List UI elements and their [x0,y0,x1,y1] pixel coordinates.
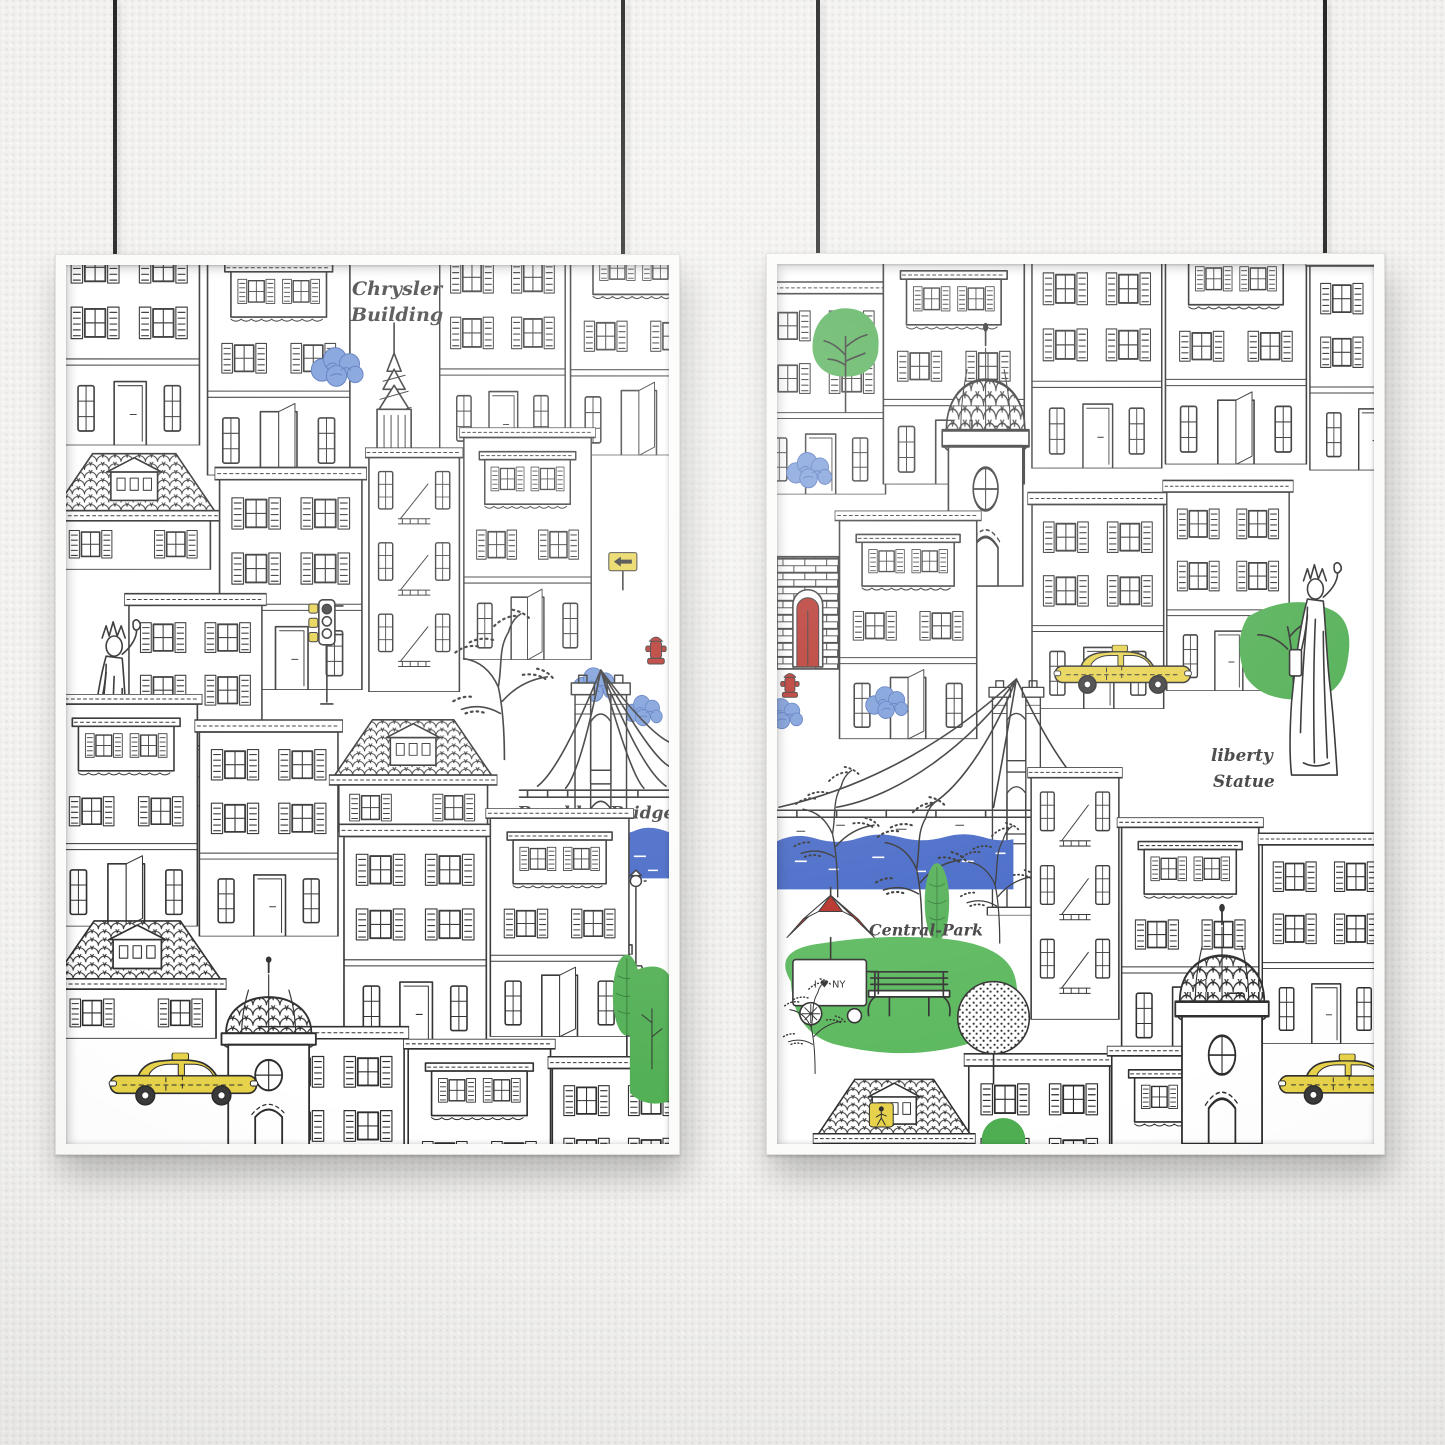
central-park-label: Central-Park [869,920,983,939]
hanging-cord-left-2 [621,0,625,262]
liberty-label-line1: liberty [1211,745,1274,765]
left-poster-art: Chrysler Building y e [66,265,669,1144]
hanging-cord-right-2 [1323,0,1327,256]
liberty-label-line2: Statue [1213,771,1275,791]
green-tree-blob [630,966,669,1103]
hanging-cord-left-1 [113,0,117,262]
left-frame: Chrysler Building y e [55,254,680,1155]
chrysler-label-line2: Building [350,304,443,326]
chrysler-label-line1: Chrysler [352,278,444,300]
fire-escape-building [1027,767,1122,1020]
wall: Chrysler Building y e [0,0,1445,1445]
pedestrian-sign-icon [869,1103,893,1127]
right-skyline-top [777,264,1374,495]
brick-building-red-door [777,557,839,669]
right-poster-art: liberty Statue [777,264,1374,1144]
right-artwork: liberty Statue [777,264,1374,1144]
subway-arrow-sign-icon [609,553,637,571]
right-frame: liberty Statue [766,253,1385,1155]
left-artwork: Chrysler Building y e [66,265,669,1144]
hanging-cord-right-1 [816,0,820,258]
